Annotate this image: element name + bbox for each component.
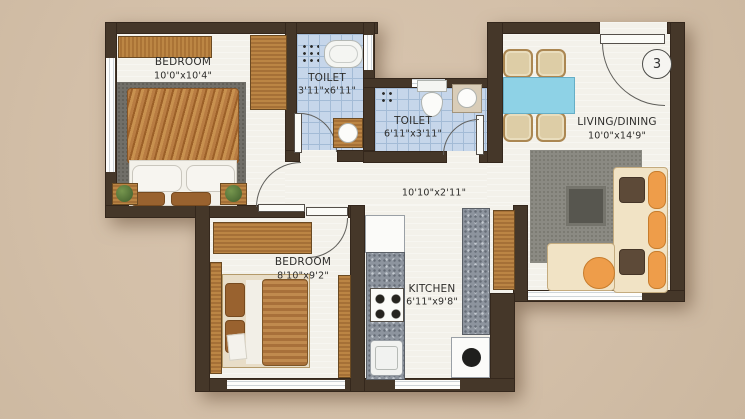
bed-pillow	[132, 165, 182, 192]
dining-chair	[536, 49, 566, 78]
folded-towel	[227, 333, 248, 361]
bed-pillow	[225, 283, 245, 317]
door-bedroom-2	[306, 207, 348, 216]
dining-chair	[536, 112, 566, 142]
wall-top-right	[487, 22, 600, 34]
washing-machine	[451, 337, 490, 378]
stove-icon	[370, 288, 404, 322]
wardrobe	[118, 36, 212, 58]
sofa-round-cushion	[583, 257, 615, 289]
room-label-toilet-1: TOILET	[308, 72, 346, 84]
bathtub-inner	[329, 45, 358, 63]
room-label-kitchen: KITCHEN	[409, 283, 456, 295]
wall-living-right	[670, 22, 685, 302]
sofa-cushion	[648, 251, 666, 289]
refrigerator	[493, 210, 515, 290]
cupboard	[250, 35, 287, 110]
bed-cushion	[171, 192, 211, 206]
room-label-bedroom-1: BEDROOM	[155, 56, 211, 68]
dining-table	[503, 77, 575, 114]
wall-top-left	[105, 22, 378, 34]
room-dims-bedroom-2: 8'10"x9'2"	[277, 271, 329, 282]
kitchen-cabinet	[365, 215, 405, 253]
room-dims-living-dining: 10'0"x14'9"	[588, 131, 646, 142]
wall-toilet-2-bottom	[363, 151, 447, 163]
window-bedroom-1	[106, 58, 115, 172]
building-outline: BEDROOM 10'0"x10'4" TOILET 3'11"x6'11" T…	[0, 0, 745, 419]
dining-chair	[503, 49, 533, 78]
sofa-pillow	[619, 249, 645, 275]
wall-bedroom-2-kitchen	[350, 205, 365, 392]
plant-icon	[116, 185, 133, 202]
room-dims-passage: 10'10"x2'11"	[402, 188, 466, 199]
sofa-pillow	[619, 177, 645, 203]
bed-blanket	[262, 279, 308, 366]
kitchen-sink-basin	[375, 346, 398, 370]
washing-machine-door	[462, 348, 481, 367]
unit-number-badge: 3	[642, 49, 672, 79]
bed-headboard	[210, 262, 222, 374]
sofa-cushion	[648, 211, 666, 249]
window-kitchen	[395, 380, 460, 389]
kitchen-sink	[370, 340, 403, 376]
washbasin	[338, 123, 358, 143]
room-dims-toilet-2: 6'11"x3'11"	[384, 129, 442, 140]
window-toilet-1	[364, 35, 373, 70]
room-dims-kitchen: 6'11"x9'8"	[406, 297, 458, 308]
bed-sheet	[246, 280, 262, 364]
floor-plan: BEDROOM 10'0"x10'4" TOILET 3'11"x6'11" T…	[0, 0, 745, 419]
wall-kitchen-right-upper	[513, 205, 528, 302]
bed-blanket	[127, 88, 239, 164]
washbasin	[457, 88, 477, 108]
shower-icon	[301, 43, 319, 63]
wc-tank	[417, 80, 447, 92]
wall-living-left	[487, 22, 503, 163]
sofa-cushion	[648, 171, 666, 209]
shower-icon	[380, 90, 396, 106]
dining-chair	[503, 112, 533, 142]
tall-cabinet	[338, 275, 351, 378]
kitchen-counter-right	[462, 208, 490, 335]
bathtub	[324, 40, 363, 68]
coffee-table	[566, 186, 606, 226]
wall-bedroom-2-left	[195, 205, 210, 392]
wardrobe	[213, 222, 312, 254]
room-label-living-dining: LIVING/DINING	[577, 116, 656, 128]
window-bedroom-2	[227, 380, 345, 389]
plant-icon	[225, 185, 242, 202]
unit-number: 3	[653, 57, 661, 72]
room-dims-toilet-1: 3'11"x6'11"	[298, 86, 356, 97]
room-dims-bedroom-1: 10'0"x10'4"	[154, 71, 212, 82]
room-label-toilet-2: TOILET	[394, 115, 432, 127]
room-label-bedroom-2: BEDROOM	[275, 256, 331, 268]
